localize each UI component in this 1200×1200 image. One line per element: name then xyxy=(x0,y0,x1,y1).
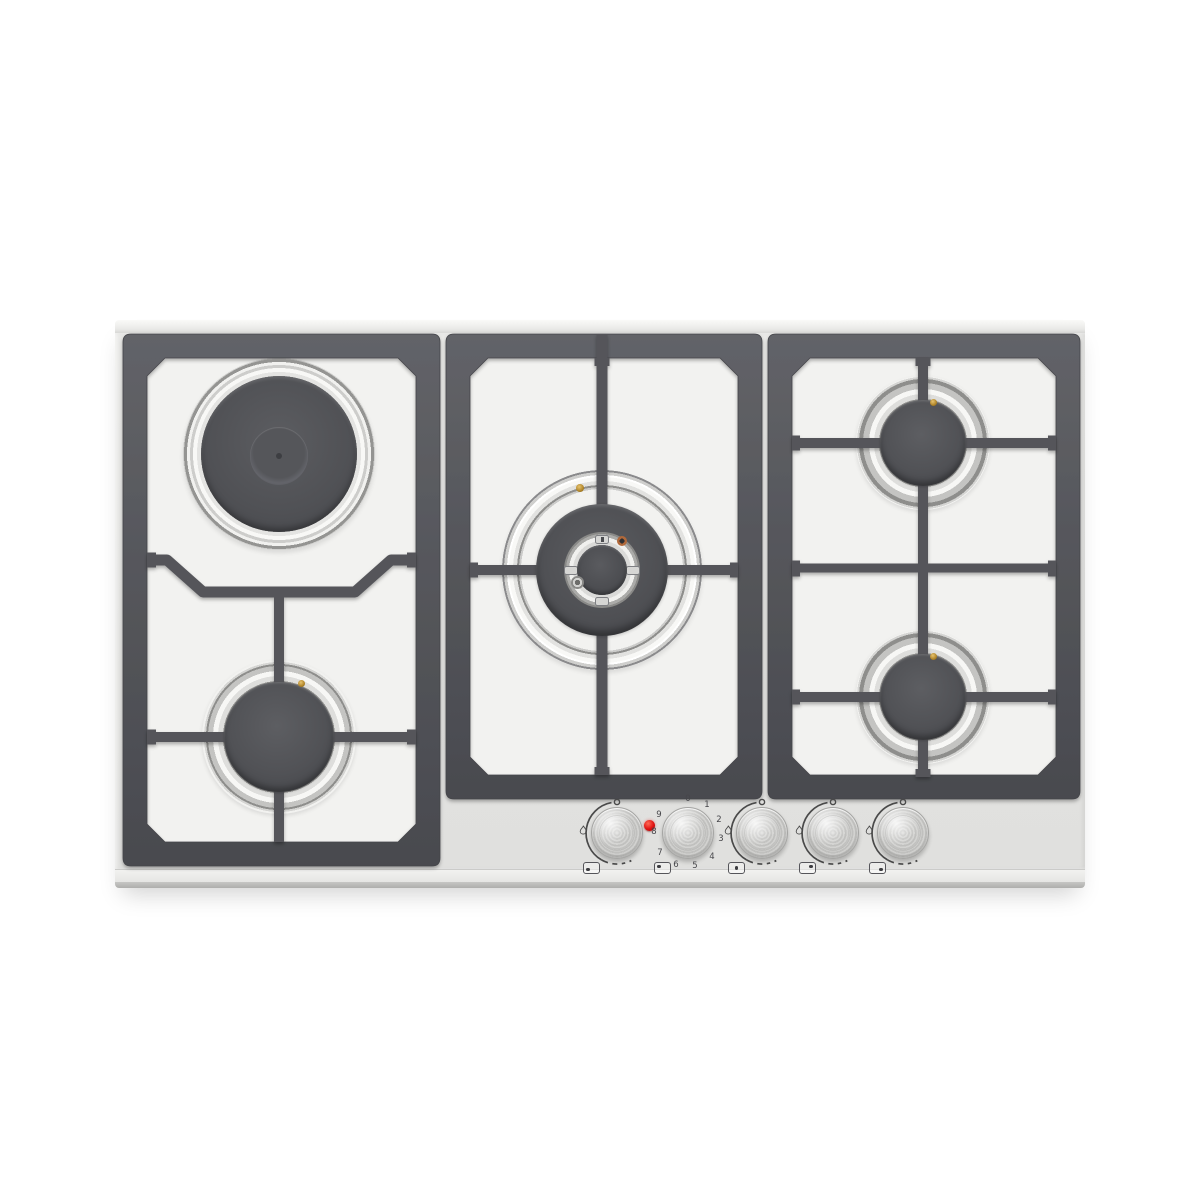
wok-screw-icon xyxy=(571,576,584,589)
front-left-burner-cap xyxy=(224,682,334,792)
knob-front-left-gas[interactable] xyxy=(579,795,655,871)
cooktop-back-edge xyxy=(115,320,1085,334)
knob-face[interactable] xyxy=(591,807,643,859)
flame-icon xyxy=(580,826,586,834)
wok-ring-tab xyxy=(626,566,640,575)
electric-plate-center-dot xyxy=(276,453,282,459)
knob-scale-number: 7 xyxy=(657,848,662,858)
wok-ring-tab xyxy=(564,566,578,575)
knob-scale-number: 1 xyxy=(704,800,709,810)
knob-scale-number: 3 xyxy=(718,834,723,844)
wok-ring-tab xyxy=(595,597,609,606)
front-left-thermocouple-icon xyxy=(298,680,305,687)
off-position-marker-icon xyxy=(614,799,619,804)
off-position-marker-icon xyxy=(900,799,905,804)
product-photo: 0 1 2 3 4 5 6 7 8 9 xyxy=(0,0,1200,1200)
wok-ring-tab xyxy=(595,535,609,544)
knob-scale-number: 4 xyxy=(709,852,714,862)
flame-icon xyxy=(725,826,731,834)
back-right-burner-cap xyxy=(880,400,966,486)
knob-back-left-electric[interactable]: 0 1 2 3 4 5 6 7 8 9 xyxy=(650,795,726,871)
front-right-thermocouple-icon xyxy=(930,653,937,660)
off-position-marker-icon xyxy=(830,799,835,804)
off-position-marker-icon xyxy=(759,799,764,804)
knob-scale-number: 8 xyxy=(651,827,656,837)
flame-icon xyxy=(866,826,872,834)
knob-face[interactable] xyxy=(877,807,929,859)
burner-position-icon-back-right xyxy=(799,862,816,874)
back-right-thermocouple-icon xyxy=(930,399,937,406)
knob-scale-number: 0 xyxy=(685,794,690,804)
knob-scale-number: 6 xyxy=(673,860,678,870)
knob-scale-number: 5 xyxy=(692,861,697,871)
knob-face[interactable] xyxy=(736,807,788,859)
wok-thermocouple-icon xyxy=(576,484,584,492)
front-right-burner-cap xyxy=(880,654,966,740)
flame-icon xyxy=(796,826,802,834)
knob-scale-number: 9 xyxy=(656,810,661,820)
knob-face[interactable] xyxy=(807,807,859,859)
burner-position-icon-front-right xyxy=(869,862,886,874)
wok-center-cap xyxy=(577,545,627,595)
knob-back-right-gas[interactable] xyxy=(795,795,871,871)
knob-scale-number: 2 xyxy=(716,815,721,825)
cooktop-bottom-lip xyxy=(115,882,1085,888)
burner-position-icon-center xyxy=(728,862,745,874)
knob-center-wok[interactable] xyxy=(724,795,800,871)
knob-face[interactable] xyxy=(662,807,714,859)
burner-position-icon-back-left xyxy=(654,862,671,874)
burner-position-icon-front-left xyxy=(583,862,600,874)
cooktop-front-edge xyxy=(115,869,1085,883)
cooktop: 0 1 2 3 4 5 6 7 8 9 xyxy=(115,320,1085,888)
wok-igniter-icon xyxy=(617,536,627,546)
knob-front-right-gas[interactable] xyxy=(865,795,941,871)
